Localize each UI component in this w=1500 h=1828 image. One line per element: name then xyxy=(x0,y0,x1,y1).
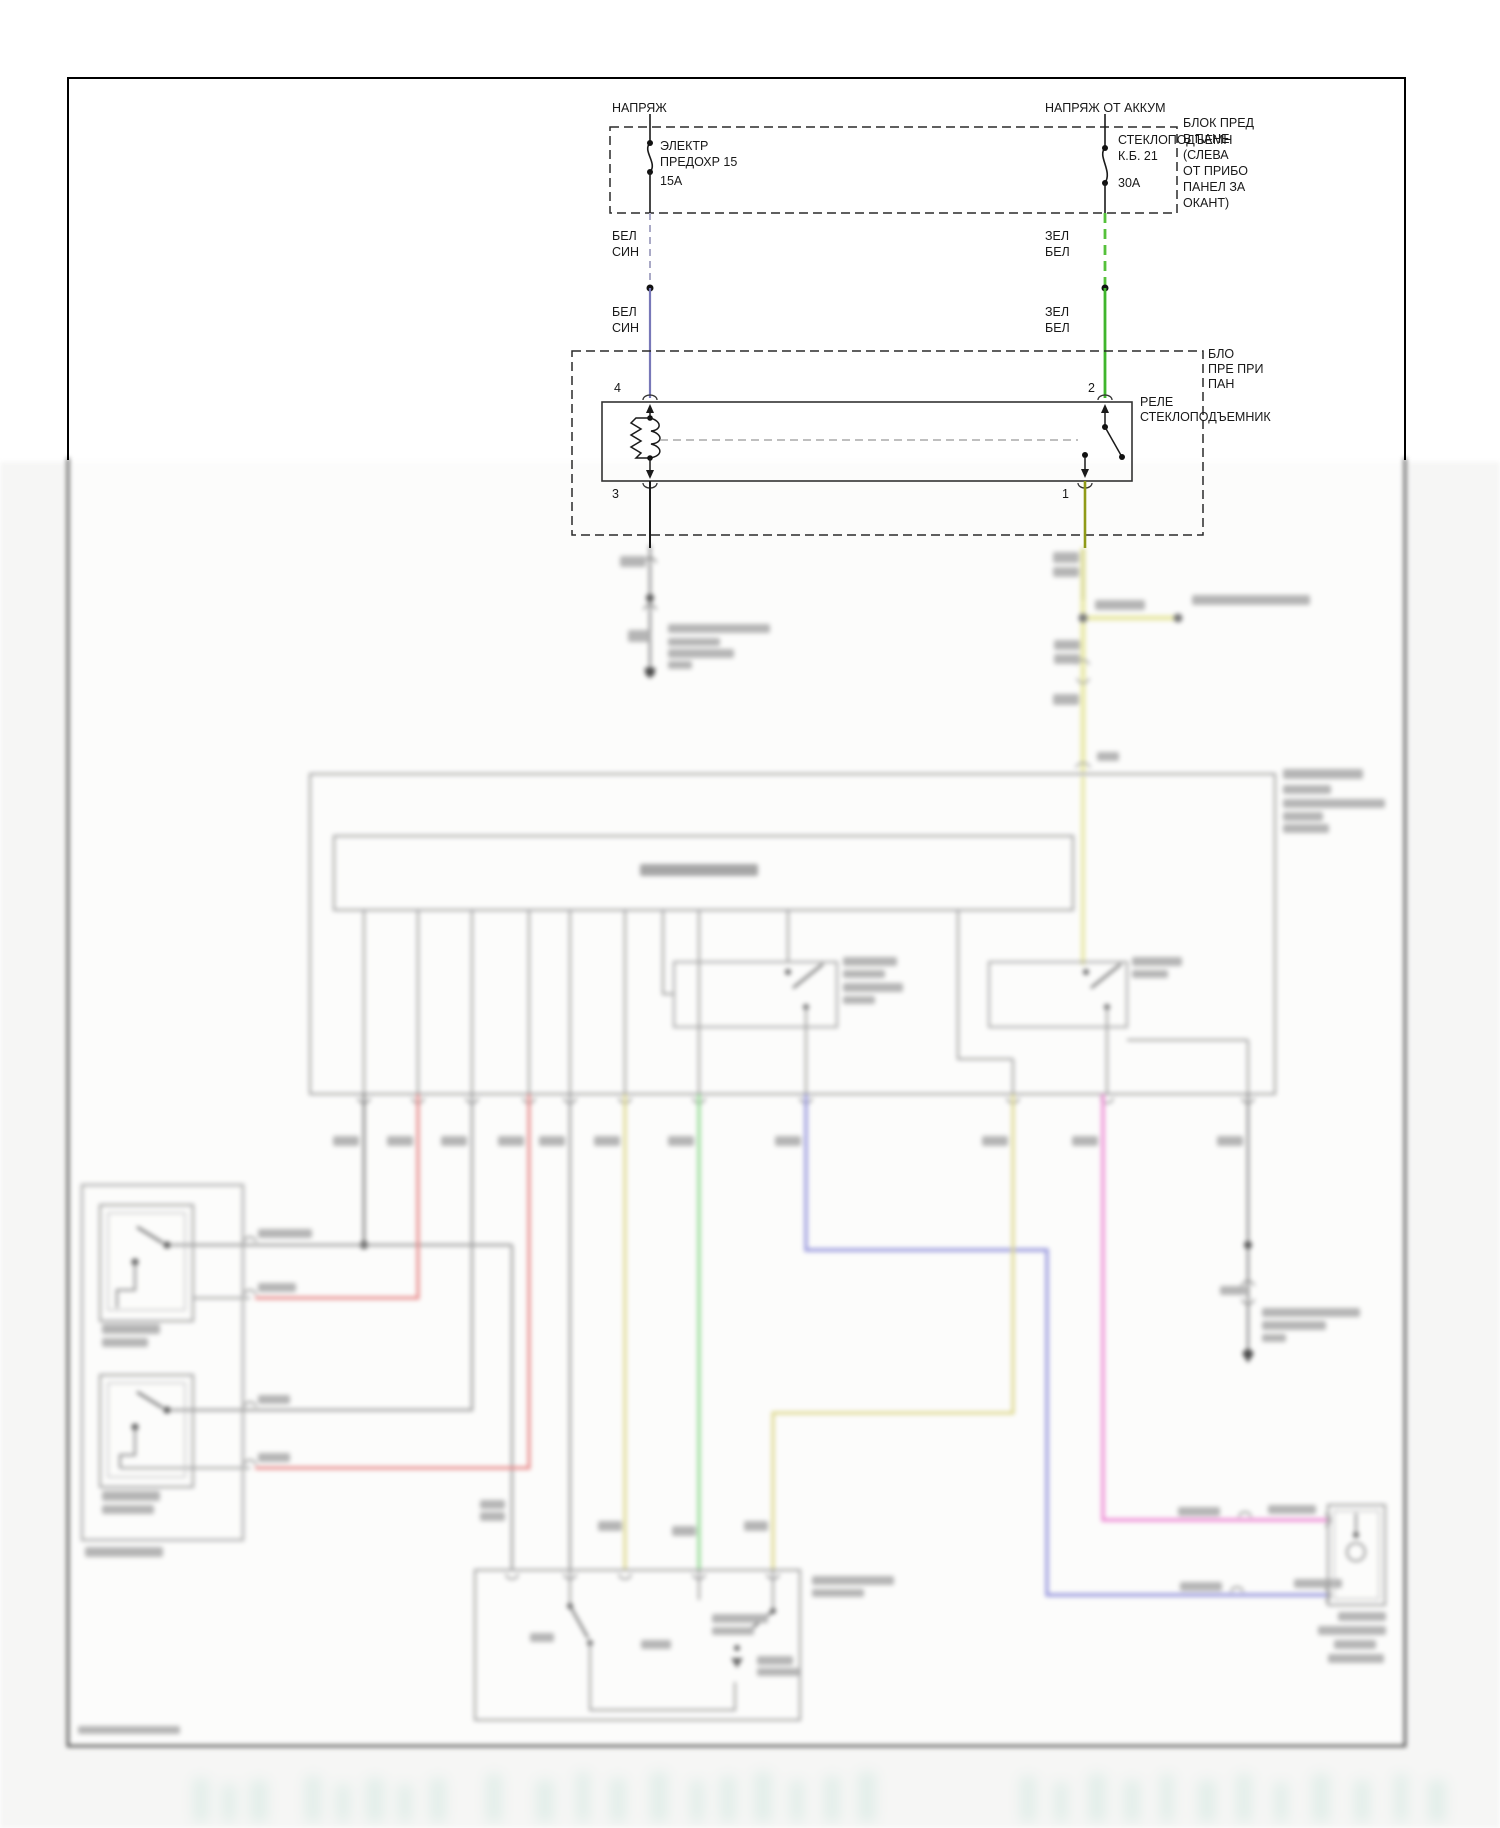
wire-left-label-lower-1: БЕЛ xyxy=(612,305,637,319)
relay-pin-2: 2 xyxy=(1088,381,1095,395)
fuse-panel-note-6: ОКАНТ) xyxy=(1183,196,1229,210)
fuse-panel-note-5: ПАНЕЛ ЗА xyxy=(1183,180,1245,194)
text-layer: НАПРЯЖ НАПРЯЖ ОТ АККУМ ЭЛЕКТР ПРЕДОХР 15… xyxy=(0,0,1500,1828)
fuse-left-name-1: ЭЛЕКТР xyxy=(660,139,708,153)
wire-right-label-lower-1: ЗЕЛ xyxy=(1045,305,1069,319)
relay-name-2: СТЕКЛОПОДЪЕМНИК xyxy=(1140,410,1271,424)
fuse-right-circuit: К.Б. 21 xyxy=(1118,149,1158,163)
fuse-panel-note-1: БЛОК ПРЕД xyxy=(1183,116,1254,130)
wire-right-label-upper-2: БЕЛ xyxy=(1045,245,1070,259)
feed-label-right: НАПРЯЖ ОТ АККУМ xyxy=(1045,101,1166,115)
feed-label-left: НАПРЯЖ xyxy=(612,101,667,115)
fuse-left-name-2: ПРЕДОХР 15 xyxy=(660,155,737,169)
wiring-diagram-page: НАПРЯЖ НАПРЯЖ ОТ АККУМ ЭЛЕКТР ПРЕДОХР 15… xyxy=(0,0,1500,1828)
wire-left-label-upper-2: СИН xyxy=(612,245,639,259)
relay-name-1: РЕЛЕ xyxy=(1140,395,1173,409)
fuse-left-rating: 15А xyxy=(660,174,682,188)
relay-pin-4: 4 xyxy=(614,381,621,395)
relay-panel-note-3: ПАН xyxy=(1208,377,1234,391)
wire-left-label-lower-2: СИН xyxy=(612,321,639,335)
fuse-panel-note-3: (СЛЕВА xyxy=(1183,148,1229,162)
fuse-panel-note-4: ОТ ПРИБО xyxy=(1183,164,1248,178)
wire-right-label-lower-2: БЕЛ xyxy=(1045,321,1070,335)
wire-right-label-upper-1: ЗЕЛ xyxy=(1045,229,1069,243)
fuse-panel-note-2: В ПАНЕ xyxy=(1183,132,1230,146)
relay-pin-3: 3 xyxy=(612,487,619,501)
relay-panel-note-1: БЛО xyxy=(1208,347,1234,361)
wire-left-label-upper-1: БЕЛ xyxy=(612,229,637,243)
relay-pin-1: 1 xyxy=(1062,487,1069,501)
fuse-right-rating: 30А xyxy=(1118,176,1140,190)
relay-panel-note-2: ПРЕ ПРИ xyxy=(1208,362,1263,376)
